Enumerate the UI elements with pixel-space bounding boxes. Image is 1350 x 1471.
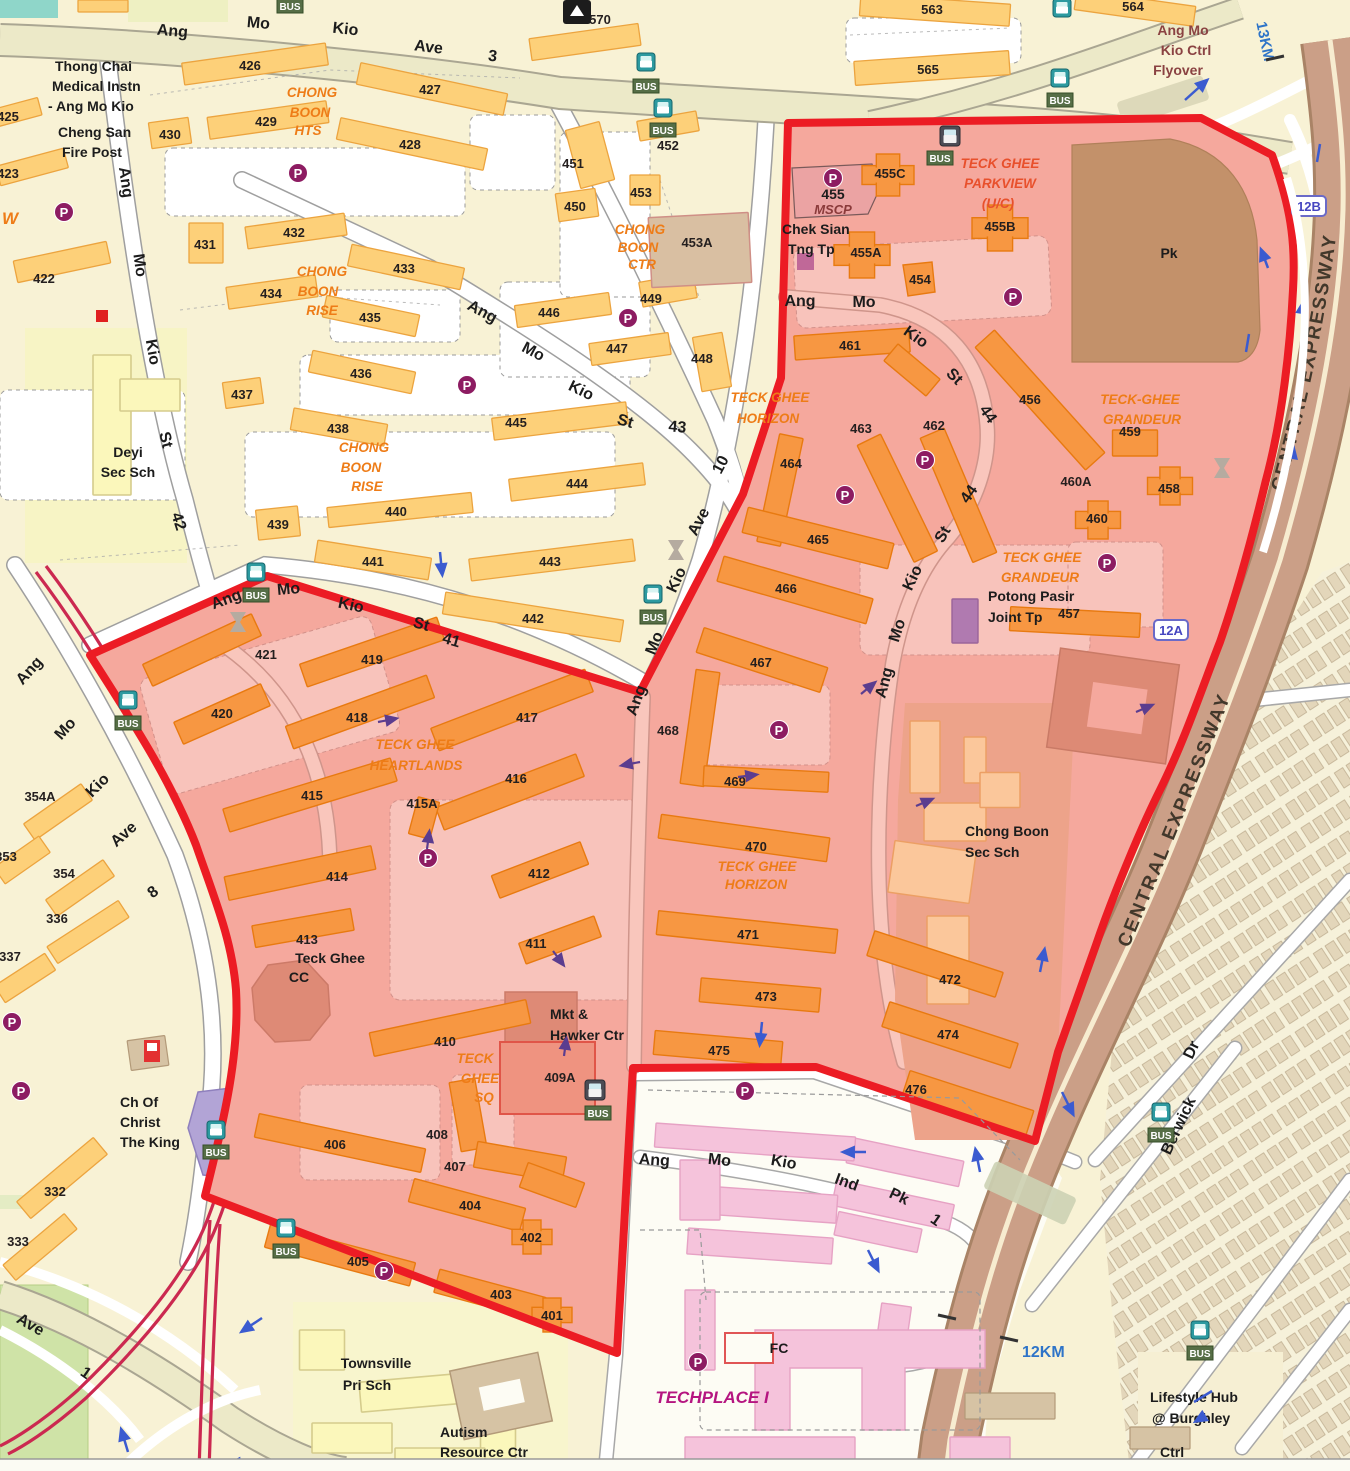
svg-text:452: 452 xyxy=(657,138,679,153)
svg-text:403: 403 xyxy=(490,1287,512,1302)
svg-text:436: 436 xyxy=(350,366,372,381)
svg-text:457: 457 xyxy=(1058,606,1080,621)
svg-text:336: 336 xyxy=(46,911,68,926)
svg-text:473: 473 xyxy=(755,989,777,1004)
svg-text:475: 475 xyxy=(708,1043,730,1058)
svg-text:TECK-GHEE: TECK-GHEE xyxy=(1100,392,1180,407)
svg-text:410: 410 xyxy=(434,1034,456,1049)
svg-text:TECK: TECK xyxy=(457,1051,495,1066)
svg-text:HORIZON: HORIZON xyxy=(737,411,799,426)
svg-text:468: 468 xyxy=(657,723,679,738)
svg-text:476: 476 xyxy=(905,1082,927,1097)
svg-text:Medical Instn: Medical Instn xyxy=(52,78,141,94)
svg-text:443: 443 xyxy=(539,554,561,569)
svg-text:Kio Ctrl: Kio Ctrl xyxy=(1161,42,1212,58)
svg-text:CHONG: CHONG xyxy=(615,222,666,237)
svg-text:474: 474 xyxy=(937,1027,959,1042)
svg-text:407: 407 xyxy=(444,1159,466,1174)
svg-text:Mkt &: Mkt & xyxy=(550,1006,588,1022)
svg-text:CHONG: CHONG xyxy=(287,85,338,100)
svg-text:427: 427 xyxy=(419,82,441,97)
svg-text:Autism: Autism xyxy=(440,1424,487,1440)
svg-text:Mo: Mo xyxy=(129,253,149,278)
svg-text:GHEE: GHEE xyxy=(461,1071,500,1086)
svg-text:446: 446 xyxy=(538,305,560,320)
svg-text:Mo: Mo xyxy=(852,294,875,311)
svg-text:BOON: BOON xyxy=(290,105,331,120)
svg-text:405: 405 xyxy=(347,1254,369,1269)
svg-text:PARKVIEW: PARKVIEW xyxy=(964,176,1037,191)
svg-text:TECK GHEE: TECK GHEE xyxy=(718,859,798,874)
svg-text:GRANDEUR: GRANDEUR xyxy=(1103,412,1181,427)
svg-text:433: 433 xyxy=(393,261,415,276)
svg-text:Ch Of: Ch Of xyxy=(120,1094,158,1110)
svg-text:461: 461 xyxy=(839,338,861,353)
svg-text:Potong Pasir: Potong Pasir xyxy=(988,588,1075,604)
svg-text:460A: 460A xyxy=(1060,474,1092,489)
svg-text:FC: FC xyxy=(770,1340,789,1356)
svg-text:CHONG: CHONG xyxy=(297,264,348,279)
svg-text:454: 454 xyxy=(909,272,931,287)
svg-text:HEARTLANDS: HEARTLANDS xyxy=(370,758,463,773)
svg-text:429: 429 xyxy=(255,114,277,129)
svg-text:445: 445 xyxy=(505,415,527,430)
svg-text:470: 470 xyxy=(745,839,767,854)
svg-text:354A: 354A xyxy=(24,789,56,804)
svg-text:415A: 415A xyxy=(406,796,438,811)
svg-text:Ang: Ang xyxy=(784,293,815,310)
svg-text:453A: 453A xyxy=(681,235,713,250)
svg-text:453: 453 xyxy=(630,185,652,200)
svg-text:409A: 409A xyxy=(544,1070,576,1085)
svg-text:Christ: Christ xyxy=(120,1114,161,1130)
svg-text:Ang: Ang xyxy=(156,22,188,42)
svg-text:458: 458 xyxy=(1158,481,1180,496)
svg-text:426: 426 xyxy=(239,58,261,73)
svg-text:Chek Sian: Chek Sian xyxy=(782,221,850,237)
svg-text:417: 417 xyxy=(516,710,538,725)
svg-text:447: 447 xyxy=(606,341,628,356)
svg-text:Kio: Kio xyxy=(332,20,360,40)
svg-text:438: 438 xyxy=(327,421,349,436)
svg-text:Sec Sch: Sec Sch xyxy=(101,464,155,480)
svg-text:CTR: CTR xyxy=(628,257,656,272)
svg-text:Thong Chai: Thong Chai xyxy=(55,58,132,74)
svg-text:Ave: Ave xyxy=(413,37,444,57)
svg-text:12A: 12A xyxy=(1159,623,1183,638)
svg-text:TECK GHEE: TECK GHEE xyxy=(731,390,811,405)
svg-text:TECK GHEE: TECK GHEE xyxy=(961,156,1041,171)
svg-text:437: 437 xyxy=(231,387,253,402)
svg-text:565: 565 xyxy=(917,62,939,77)
svg-text:401: 401 xyxy=(541,1308,563,1323)
svg-text:471: 471 xyxy=(737,927,759,942)
svg-text:TECHPLACE I: TECHPLACE I xyxy=(655,1388,770,1407)
svg-text:Cheng San: Cheng San xyxy=(58,124,131,140)
svg-text:BOON: BOON xyxy=(298,284,339,299)
svg-text:332: 332 xyxy=(44,1184,66,1199)
svg-text:(U/C): (U/C) xyxy=(982,196,1015,211)
svg-text:439: 439 xyxy=(267,517,289,532)
svg-text:463: 463 xyxy=(850,421,872,436)
svg-text:414: 414 xyxy=(326,869,348,884)
svg-text:466: 466 xyxy=(775,581,797,596)
svg-text:412: 412 xyxy=(528,866,550,881)
svg-text:Mo: Mo xyxy=(276,580,301,599)
svg-text:353: 353 xyxy=(0,849,17,864)
svg-text:406: 406 xyxy=(324,1137,346,1152)
svg-text:Townsville: Townsville xyxy=(341,1355,412,1371)
svg-text:Teck Ghee: Teck Ghee xyxy=(295,950,365,966)
svg-text:Deyi: Deyi xyxy=(113,444,143,460)
svg-text:451: 451 xyxy=(562,156,584,171)
svg-text:467: 467 xyxy=(750,655,772,670)
svg-text:12B: 12B xyxy=(1297,199,1321,214)
svg-text:472: 472 xyxy=(939,972,961,987)
svg-text:BOON: BOON xyxy=(341,460,382,475)
svg-text:448: 448 xyxy=(691,351,713,366)
svg-text:415: 415 xyxy=(301,788,323,803)
svg-text:BOON: BOON xyxy=(618,240,659,255)
svg-text:442: 442 xyxy=(522,611,544,626)
svg-text:465: 465 xyxy=(807,532,829,547)
svg-text:Pri Sch: Pri Sch xyxy=(343,1377,391,1393)
svg-text:430: 430 xyxy=(159,127,181,142)
svg-text:Lifestyle Hub: Lifestyle Hub xyxy=(1150,1389,1238,1405)
svg-text:W: W xyxy=(2,209,20,228)
svg-text:- Ang Mo Kio: - Ang Mo Kio xyxy=(48,98,134,114)
svg-text:The King: The King xyxy=(120,1134,180,1150)
svg-text:431: 431 xyxy=(194,237,216,252)
svg-text:432: 432 xyxy=(283,225,305,240)
svg-text:411: 411 xyxy=(526,936,547,951)
svg-text:HORIZON: HORIZON xyxy=(725,877,787,892)
svg-text:354: 354 xyxy=(53,866,75,881)
svg-text:408: 408 xyxy=(426,1127,448,1142)
svg-text:Ang Mo: Ang Mo xyxy=(1157,22,1208,38)
svg-text:Flyover: Flyover xyxy=(1153,62,1203,78)
svg-text:434: 434 xyxy=(260,286,282,301)
svg-text:337: 337 xyxy=(0,949,21,964)
svg-text:416: 416 xyxy=(505,771,527,786)
svg-text:570: 570 xyxy=(589,12,611,27)
svg-text:Ang: Ang xyxy=(638,1151,670,1170)
svg-text:422: 422 xyxy=(33,271,55,286)
svg-text:413: 413 xyxy=(296,932,318,947)
svg-text:Tng Tp: Tng Tp xyxy=(788,241,835,257)
svg-text:418: 418 xyxy=(346,710,368,725)
svg-text:450: 450 xyxy=(564,199,586,214)
svg-text:MSCP: MSCP xyxy=(814,202,852,217)
svg-text:449: 449 xyxy=(640,291,662,306)
svg-text:456: 456 xyxy=(1019,392,1041,407)
svg-text:Mo: Mo xyxy=(707,1151,732,1170)
svg-text:455A: 455A xyxy=(850,245,882,260)
svg-text:GRANDEUR: GRANDEUR xyxy=(1001,570,1079,585)
svg-text:Hawker Ctr: Hawker Ctr xyxy=(550,1027,624,1043)
svg-text:43: 43 xyxy=(668,418,687,436)
svg-text:Joint Tp: Joint Tp xyxy=(988,609,1042,625)
svg-text:402: 402 xyxy=(520,1230,542,1245)
svg-text:404: 404 xyxy=(459,1198,481,1213)
svg-text:563: 563 xyxy=(921,2,943,17)
svg-text:420: 420 xyxy=(211,706,233,721)
svg-text:440: 440 xyxy=(385,504,407,519)
svg-text:12KM: 12KM xyxy=(1022,1344,1065,1361)
svg-text:333: 333 xyxy=(7,1234,29,1249)
svg-text:Pk: Pk xyxy=(1160,245,1177,261)
svg-text:425: 425 xyxy=(0,109,19,124)
svg-text:444: 444 xyxy=(566,476,588,491)
svg-text:CHONG: CHONG xyxy=(339,440,390,455)
svg-text:423: 423 xyxy=(0,166,19,181)
svg-text:564: 564 xyxy=(1122,0,1144,14)
svg-text:421: 421 xyxy=(255,647,277,662)
svg-text:RISE: RISE xyxy=(351,479,384,494)
svg-text:419: 419 xyxy=(361,652,383,667)
svg-text:428: 428 xyxy=(399,137,421,152)
svg-text:CC: CC xyxy=(289,969,309,985)
svg-text:HTS: HTS xyxy=(295,123,322,138)
svg-text:@ Burghley: @ Burghley xyxy=(1152,1410,1230,1426)
svg-text:455: 455 xyxy=(821,186,845,202)
svg-text:TECK GHEE: TECK GHEE xyxy=(1003,550,1083,565)
svg-text:Fire Post: Fire Post xyxy=(62,144,122,160)
svg-text:TECK GHEE: TECK GHEE xyxy=(376,737,456,752)
svg-text:Mo: Mo xyxy=(246,14,271,33)
svg-text:Sec Sch: Sec Sch xyxy=(965,844,1019,860)
svg-text:Ctrl: Ctrl xyxy=(1160,1444,1184,1460)
svg-text:SQ: SQ xyxy=(474,1090,494,1105)
svg-text:462: 462 xyxy=(923,418,945,433)
svg-text:Chong Boon: Chong Boon xyxy=(965,823,1049,839)
svg-text:455C: 455C xyxy=(874,166,906,181)
svg-text:460: 460 xyxy=(1086,511,1108,526)
svg-text:RISE: RISE xyxy=(306,303,339,318)
svg-text:455B: 455B xyxy=(984,219,1015,234)
svg-text:441: 441 xyxy=(362,554,384,569)
svg-text:435: 435 xyxy=(359,310,381,325)
svg-text:464: 464 xyxy=(780,456,802,471)
